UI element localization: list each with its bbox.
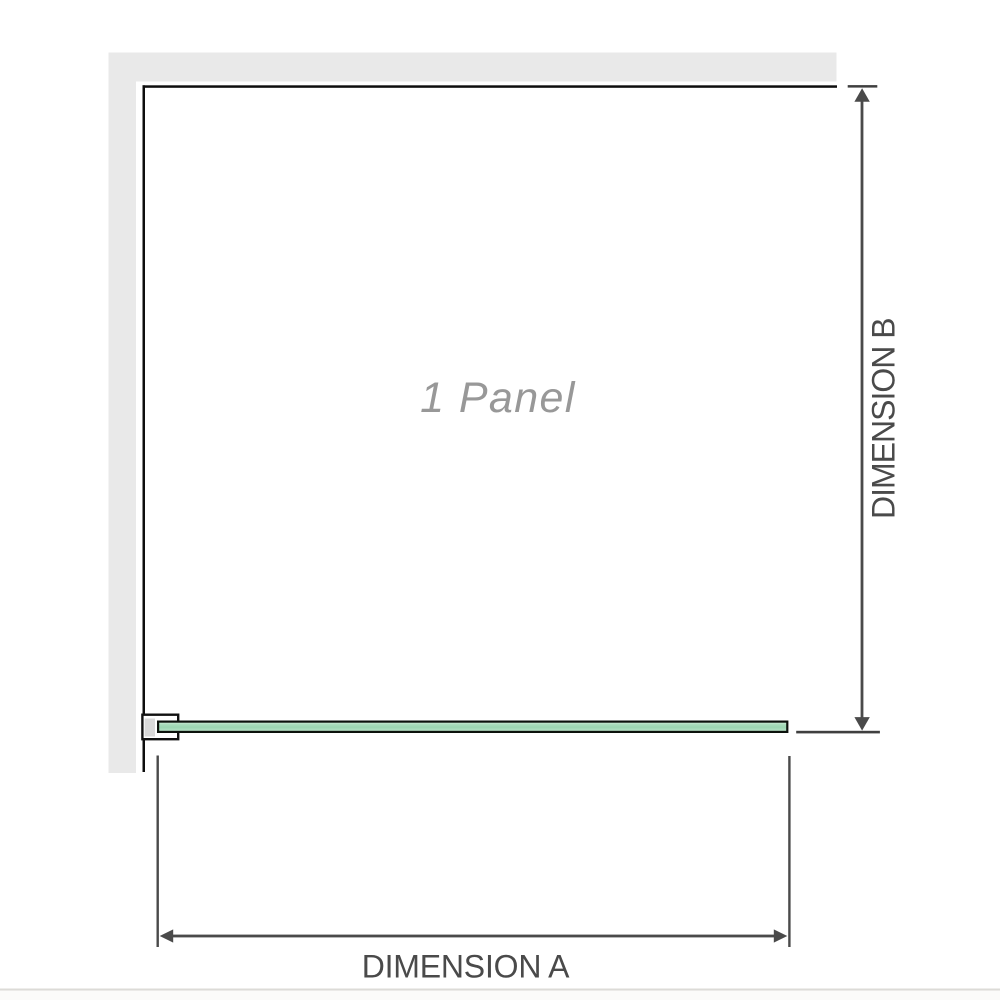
svg-text:DIMENSION B: DIMENSION B (866, 318, 902, 519)
svg-text:1 Panel: 1 Panel (420, 374, 576, 422)
svg-text:DIMENSION A: DIMENSION A (362, 948, 570, 984)
